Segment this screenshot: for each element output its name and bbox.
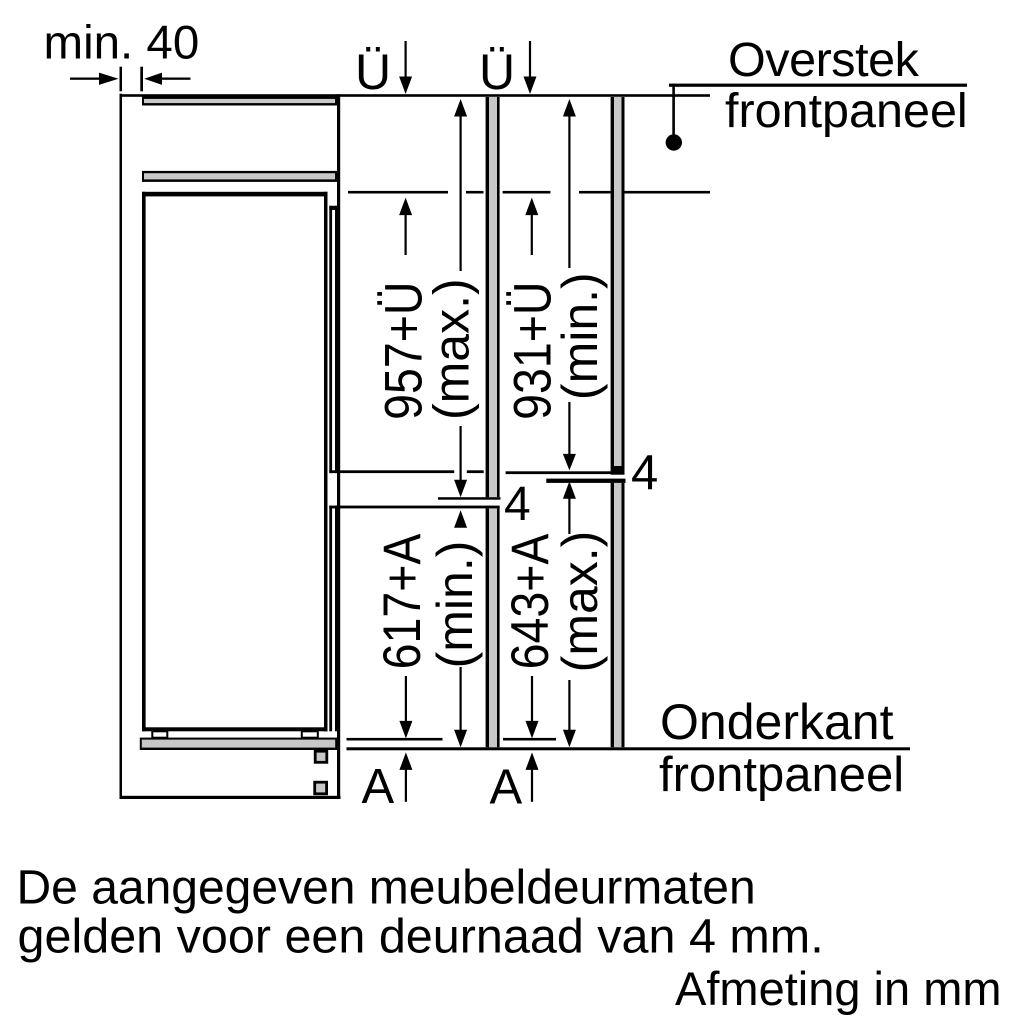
svg-text:(min.): (min.)	[552, 272, 608, 400]
svg-text:A: A	[362, 760, 395, 814]
svg-text:frontpaneel: frontpaneel	[725, 84, 968, 138]
svg-text:min. 40: min. 40	[44, 17, 200, 70]
svg-text:Onderkant: Onderkant	[660, 694, 894, 750]
svg-text:De aangegeven meubeldeurmaten: De aangegeven meubeldeurmaten	[17, 862, 756, 915]
svg-text:A: A	[490, 761, 523, 815]
svg-text:(max.): (max.)	[552, 531, 608, 673]
svg-text:Ü: Ü	[355, 44, 391, 100]
svg-text:gelden voor een deurnaad van 4: gelden voor een deurnaad van 4 mm.	[18, 910, 824, 964]
svg-text:Overstek: Overstek	[728, 33, 920, 87]
svg-text:4: 4	[631, 446, 658, 500]
svg-text:Afmeting in mm: Afmeting in mm	[675, 962, 1001, 1015]
svg-text:617+A: 617+A	[372, 533, 432, 669]
svg-text:frontpaneel: frontpaneel	[659, 748, 904, 802]
svg-text:Ü: Ü	[479, 44, 515, 100]
svg-text:(max.): (max.)	[424, 278, 480, 420]
svg-text:4: 4	[504, 478, 531, 531]
svg-text:643+A: 643+A	[500, 533, 560, 669]
svg-text:(min.): (min.)	[427, 541, 483, 669]
